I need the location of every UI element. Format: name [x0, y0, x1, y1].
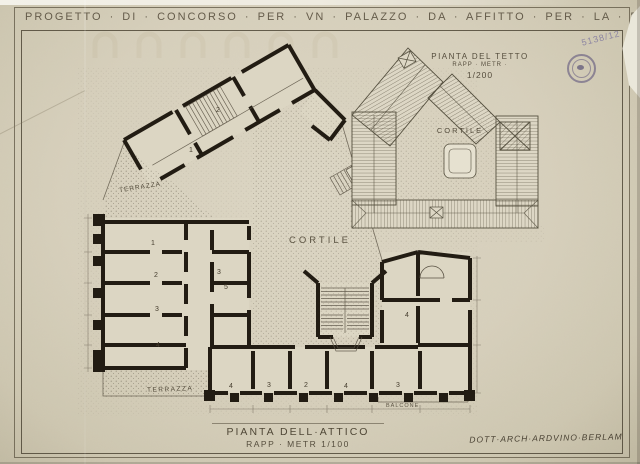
roof-plan-title: PIANTA DEL TETTO [424, 52, 536, 62]
attic-plan-title: PIANTA DELL·ATTICO [206, 426, 390, 439]
archive-stamp-icon [567, 54, 596, 83]
roof-plan-titleblock: PIANTA DEL TETTO RAPP · METR · 1/200 [424, 52, 536, 81]
drawing-sheet: 2 1 1 2 3 4 3 5 4 3 2 4 3 4 [0, 0, 640, 464]
attic-courtyard-label: CORTILE [286, 235, 354, 246]
paper-top-edge [0, 0, 640, 5]
paper-crease-vertical [84, 0, 86, 464]
stamp-center [577, 65, 584, 70]
roof-plan-scale-value: 1/200 [424, 70, 536, 81]
attic-plan-scale: RAPP · METR 1/100 [206, 439, 390, 449]
balcony-label: BALCONE [386, 403, 419, 409]
titleblock-rule [212, 423, 384, 424]
attic-plan-titleblock: PIANTA DELL·ATTICO RAPP · METR 1/100 [206, 426, 390, 449]
sheet-title: PROGETTO · DI · CONCORSO · PER · VN · PA… [25, 11, 617, 23]
roof-plan-scale-label: RAPP · METR · [424, 62, 536, 70]
roof-courtyard-label: CORTILE [432, 126, 488, 135]
